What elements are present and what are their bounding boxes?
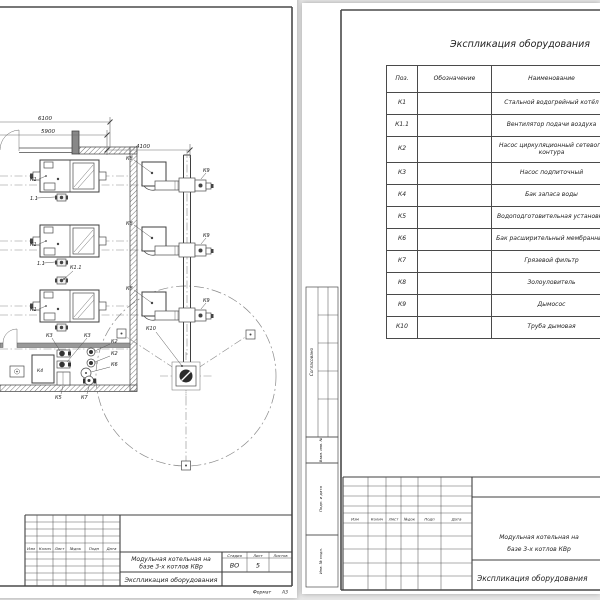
tb-col-kolich: Колич [39, 546, 52, 551]
table-row: К1Стальной водогрейный котёл [387, 93, 600, 115]
cell-name: Грязевой фильтр [492, 251, 600, 273]
cell-name: Бак запаса воды [492, 185, 600, 207]
table-row: К9Дымосос [387, 295, 600, 317]
cell-pos: К7 [387, 251, 418, 273]
cell-designation [418, 185, 492, 207]
tb-col-kolich: Колич [371, 517, 384, 522]
table-header-row: Поз. Обозначение Наименование [387, 66, 600, 93]
stage-label: Стадия [227, 553, 242, 558]
table-row: К10Труба дымовая [387, 317, 600, 339]
sheet-label: Лист [252, 553, 263, 558]
cell-designation [418, 137, 492, 163]
side-stamp: Согласовано Взам. инв. № Подп. и дата Ин… [306, 287, 338, 587]
cell-pos: К2 [387, 137, 418, 163]
label-k4: К4 [37, 368, 43, 374]
label-k5: К5 [55, 395, 62, 401]
label-k3: К3 [46, 333, 53, 339]
tb-col-ndok: №док [69, 546, 82, 551]
cell-pos: К1.1 [387, 115, 418, 137]
cell-name: Вентилятор подачи воздуха [492, 115, 600, 137]
cell-name: Стальной водогрейный котёл [492, 93, 600, 115]
cell-designation [418, 115, 492, 137]
table-row: К1.1Вентилятор подачи воздуха [387, 115, 600, 137]
sheet-number: 5 [256, 562, 260, 570]
cell-pos: К4 [387, 185, 418, 207]
title-block-right: Изм Колич Лист №док Подп Дата Модульная … [343, 477, 600, 590]
plan-drawing: К1 К8 К9 1.1 1.1 К1.1 [0, 0, 297, 600]
cell-designation [418, 207, 492, 229]
label-k2: К2 [111, 351, 118, 357]
cell-designation [418, 251, 492, 273]
project-name-line1: Модульная котельная на [131, 556, 211, 563]
cell-designation [418, 317, 492, 339]
stage-value: ВО [230, 562, 240, 570]
table-row: К2Насос циркуляционный сетевого контура [387, 137, 600, 163]
dim-4100: 4100 [136, 144, 150, 150]
dim-5900: 5900 [41, 129, 55, 135]
cell-designation [418, 93, 492, 115]
label-k7: К7 [81, 395, 89, 401]
dim-6100: 6100 [38, 116, 52, 122]
sheets-label: Листов [272, 553, 288, 558]
cell-pos: К8 [387, 273, 418, 295]
project-name-line2: базе 3-х котлов КВр [139, 564, 203, 571]
label-k3: К3 [84, 333, 91, 339]
chimney-k10: К10 [146, 326, 200, 390]
cell-pos: К10 [387, 317, 418, 339]
cell-pos: К1 [387, 93, 418, 115]
tb-col-list: Лист [54, 546, 65, 551]
table-title: Экспликация оборудования [420, 39, 600, 50]
fan-symbol [55, 277, 68, 284]
stamp-vzam-inv: Взам. инв. № [319, 438, 323, 463]
header-designation: Обозначение [418, 66, 492, 93]
screenshot-root: { "colors": {"background": "#e7e7e7", "p… [0, 0, 600, 600]
sheet-right-explication: Согласовано Взам. инв. № Подп. и дата Ин… [302, 3, 600, 594]
cell-name: Дымосос [492, 295, 600, 317]
cell-name: Бак расширительный мембранный [492, 229, 600, 251]
door-symbols [0, 130, 19, 343]
table-row: К4Бак запаса воды [387, 185, 600, 207]
cell-pos: К5 [387, 207, 418, 229]
cell-designation [418, 163, 492, 185]
stamp-inv-podl: Инв. № подл. [318, 548, 323, 574]
table-row: К8Золоуловитель [387, 273, 600, 295]
tb-col-podp: Подп [89, 546, 100, 551]
format-label: Формат [253, 590, 272, 596]
cell-name: Насос подпиточный [492, 163, 600, 185]
stamp-podp-data: Подп. и дата [318, 485, 323, 512]
cell-pos: К6 [387, 229, 418, 251]
table-row: К5Водоподготовительная установка [387, 207, 600, 229]
project-name-line1: Модульная котельная на [499, 534, 579, 541]
cell-name: Водоподготовительная установка [492, 207, 600, 229]
tb-col-izm: Изм [27, 546, 35, 551]
label-1-1: 1.1 [37, 261, 45, 267]
tb-col-data: Дата [451, 517, 463, 522]
cell-designation [418, 229, 492, 251]
table-row: К7Грязевой фильтр [387, 251, 600, 273]
tb-col-ndok: №док [403, 517, 416, 522]
label-1-1: 1.1 [30, 196, 38, 202]
cell-pos: К9 [387, 295, 418, 317]
tb-col-podp: Подп [424, 517, 435, 522]
cell-name: Труба дымовая [492, 317, 600, 339]
header-pos: Поз. [387, 66, 418, 93]
label-k2: К2 [111, 339, 118, 345]
cell-name: Золоуловитель [492, 273, 600, 295]
stamp-agreed: Согласовано [309, 348, 314, 377]
cell-pos: К3 [387, 163, 418, 185]
table-row: К6Бак расширительный мембранный [387, 229, 600, 251]
tb-col-list: Лист [388, 517, 399, 522]
label-k1-1: К1.1 [70, 265, 82, 271]
format-value: А3 [281, 590, 288, 596]
tb-col-izm: Изм [351, 517, 359, 522]
label-k10: К10 [146, 326, 156, 332]
project-name-line2: базе 3-х котлов КВр [507, 546, 571, 553]
title-block-left: Изм Колич Лист №док Подп Дата Модульная … [25, 515, 292, 596]
cell-designation [418, 295, 492, 317]
table-row: К3Насос подпиточный [387, 163, 600, 185]
doc-title-right: Экспликация оборудования [476, 574, 588, 583]
cell-name: Насос циркуляционный сетевого контура [492, 137, 600, 163]
header-name: Наименование [492, 66, 600, 93]
tb-col-data: Дата [106, 546, 118, 551]
doc-title-left: Экспликация оборудования [124, 576, 218, 584]
cell-designation [418, 273, 492, 295]
equipment-table: Поз. Обозначение Наименование К1Стальной… [386, 65, 600, 339]
label-k6: К6 [111, 362, 118, 368]
sheet-left-plan: К1 К8 К9 1.1 1.1 К1.1 [0, 0, 297, 598]
